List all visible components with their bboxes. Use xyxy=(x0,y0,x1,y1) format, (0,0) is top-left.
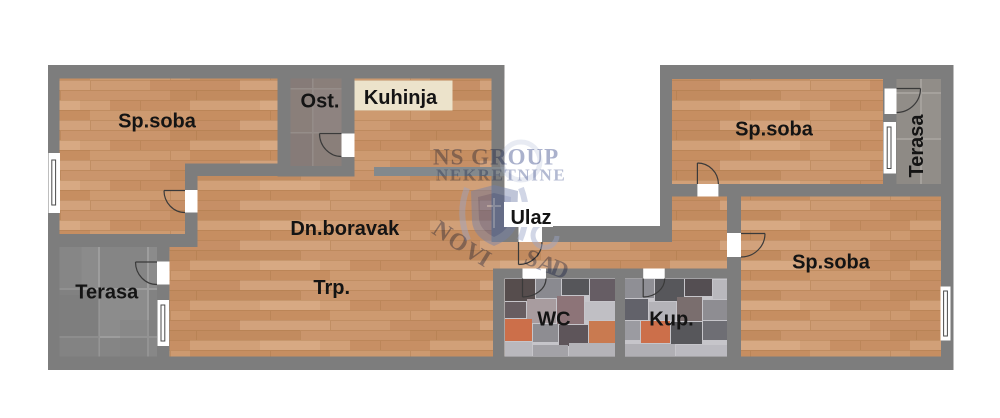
svg-text:Ulaz: Ulaz xyxy=(510,207,551,229)
svg-text:NEKRETNINE: NEKRETNINE xyxy=(436,166,566,185)
svg-text:Dn.boravak: Dn.boravak xyxy=(290,218,400,240)
svg-text:Terasa: Terasa xyxy=(906,114,928,178)
svg-text:Kuhinja: Kuhinja xyxy=(364,87,438,109)
svg-text:Kup.: Kup. xyxy=(649,309,693,331)
svg-text:WC: WC xyxy=(537,309,570,331)
svg-text:Ost.: Ost. xyxy=(301,91,340,113)
svg-text:Sp.soba: Sp.soba xyxy=(792,252,871,274)
svg-text:Terasa: Terasa xyxy=(75,282,139,304)
svg-text:Sp.soba: Sp.soba xyxy=(118,111,197,133)
svg-text:Trp.: Trp. xyxy=(313,277,350,299)
svg-text:Sp.soba: Sp.soba xyxy=(735,119,814,141)
